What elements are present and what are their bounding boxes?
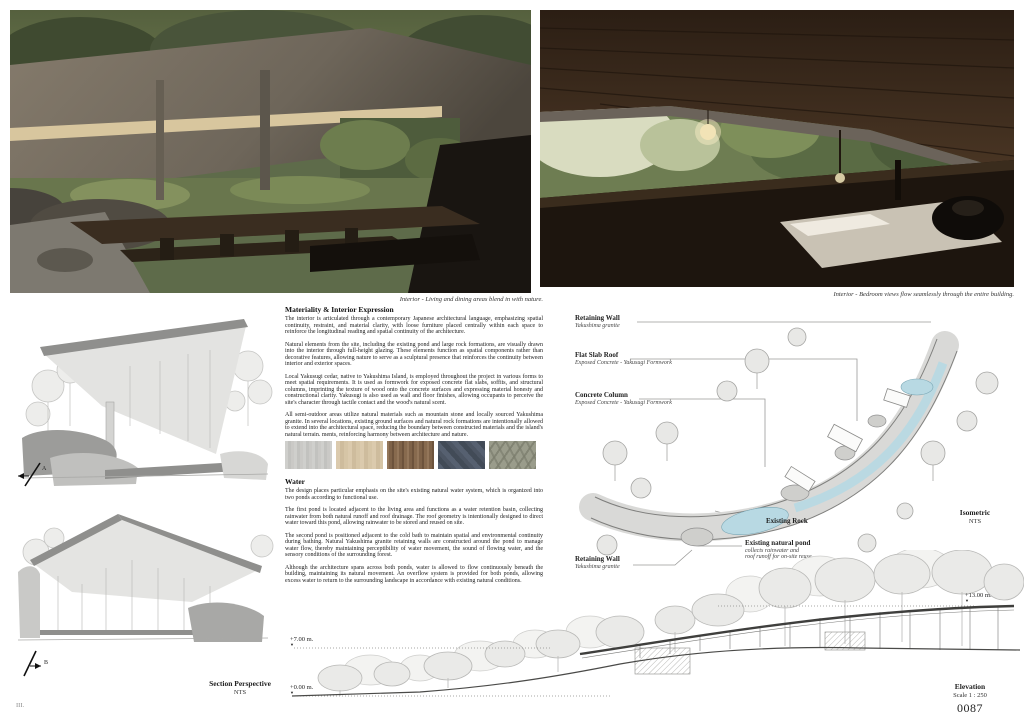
- photo-living-dining: [10, 10, 531, 293]
- water-paragraph-1: The design places particular emphasis on…: [285, 488, 543, 501]
- section-cut-arrow-a-icon: [16, 460, 52, 494]
- label-flat-slab-roof: Flat Slab Roof Exposed Concrete - Yakusu…: [575, 352, 672, 366]
- materiality-heading: Materiality & Interior Expression: [285, 305, 543, 314]
- elevation-drawing: [280, 550, 1024, 724]
- label-existing-rock: Existing Rock: [766, 518, 808, 526]
- elevation-title: Elevation: [925, 682, 1015, 691]
- material-swatches: [285, 441, 543, 469]
- caption-bedroom: Interior - Bedroom views flow seamlessly…: [700, 291, 1014, 299]
- text-column: Materiality & Interior Expression The in…: [285, 305, 543, 590]
- swatch-yakusugi-plank: [387, 441, 434, 469]
- photo-bedroom: [540, 10, 1014, 287]
- swatch-yakushima-granite: [438, 441, 485, 469]
- living-photo-art: [10, 10, 531, 293]
- materiality-paragraph-2: Natural elements from the site, includin…: [285, 342, 543, 368]
- section-marker-a: A: [16, 460, 52, 494]
- level-marker-0m: +0.00 m. ▼: [290, 684, 313, 696]
- water-heading: Water: [285, 477, 543, 486]
- folio-numeral: III.: [16, 702, 24, 709]
- water-paragraph-2: The first pond is located adjacent to th…: [285, 507, 543, 527]
- swatch-light-cedar: [336, 441, 383, 469]
- isometric-title-block: Isometric NTS: [940, 508, 1010, 525]
- bedroom-photo-art: [540, 10, 1014, 287]
- materiality-paragraph-1: The interior is articulated through a co…: [285, 316, 543, 336]
- level-triangle-icon: ▼: [290, 691, 313, 695]
- isometric-title: Isometric: [940, 508, 1010, 517]
- swatch-concrete-formwork: [285, 441, 332, 469]
- isometric-scale: NTS: [940, 518, 1010, 525]
- materiality-paragraph-3: Local Yakusugi cedar, native to Yakushim…: [285, 374, 543, 407]
- swatch-stone-paving: [489, 441, 536, 469]
- page-number: 0087: [925, 701, 1015, 716]
- elevation-title-block: Elevation Scale 1 : 250 0087: [925, 682, 1015, 716]
- label-concrete-column: Concrete Column Exposed Concrete - Yakus…: [575, 392, 672, 406]
- section-marker-b-label: B: [44, 660, 48, 666]
- elevation-scale: Scale 1 : 250: [925, 692, 1015, 699]
- section-perspective-b-drawing: [10, 502, 278, 660]
- level-marker-7m: +7.00 m. ▼: [290, 636, 313, 648]
- section-marker-a-label: A: [42, 466, 46, 472]
- level-marker-13m: +13.00 m. ▼: [965, 592, 992, 604]
- label-retaining-wall-top: Retaining Wall Yakushima granite: [575, 315, 620, 329]
- level-triangle-icon: ▼: [965, 599, 992, 603]
- presentation-board: Interior - Living and dining areas blend…: [0, 0, 1024, 724]
- materiality-paragraph-4: All semi-outdoor areas utilize natural m…: [285, 412, 543, 438]
- level-triangle-icon: ▼: [290, 643, 313, 647]
- caption-living: Interior - Living and dining areas blend…: [285, 296, 543, 304]
- section-marker-b: B: [16, 648, 52, 682]
